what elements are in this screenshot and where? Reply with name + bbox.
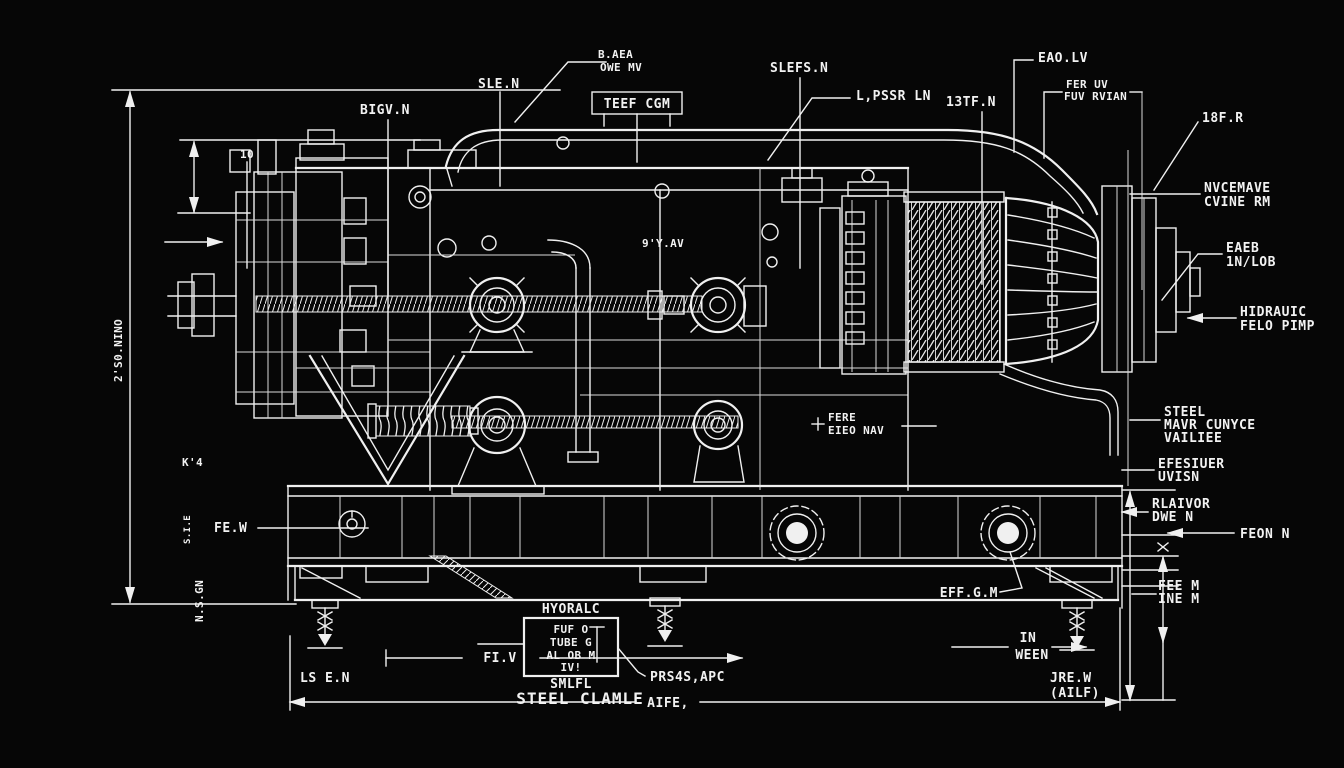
label-fere-line1: FERE — [828, 411, 856, 424]
label-nvce-line2: CVINE RM — [1204, 195, 1271, 210]
label-box-line1: FUF O — [553, 623, 588, 636]
label-feonn: FEON N — [1240, 527, 1290, 542]
label-eao: EAO.LV — [1038, 51, 1088, 66]
label-feem-line2: INE M — [1158, 592, 1200, 607]
label-fer-line2: FUV RVIAN — [1064, 90, 1127, 103]
label-18fr: 18F.R — [1202, 111, 1244, 126]
gear-cluster — [820, 170, 906, 374]
label-steel-line3: VAILIEE — [1164, 431, 1222, 446]
label-ten: 10 — [240, 148, 254, 161]
label-fere-line2: EIEO NAV — [828, 424, 884, 437]
label-in-line1: IN — [1020, 631, 1037, 646]
rosette-wheel-left — [770, 506, 824, 560]
label-nsgn-vertical: N.S.GN — [193, 580, 206, 622]
label-nvce-line1: NVCEMAVE — [1204, 181, 1271, 196]
jack-foot-left — [308, 600, 342, 648]
rosette-wheel-right — [981, 506, 1035, 560]
label-in-line2: WEEN — [1015, 648, 1048, 663]
blueprint-drawing: B.AEA OWE MV SLEFS.N TEEF CGM L,PSSR LN … — [0, 0, 1344, 768]
label-effgm: EFF.G.M — [940, 586, 998, 601]
label-box-line2: TUBE G — [550, 636, 592, 649]
label-lpssr: L,PSSR LN — [856, 89, 931, 104]
label-bigv: BIGV.N — [360, 103, 410, 118]
jack-foot-right — [1060, 600, 1094, 650]
label-jrew-line1: JRE.W — [1050, 671, 1092, 686]
end-assembly — [1102, 186, 1200, 372]
jack-foot-center — [648, 598, 682, 646]
bearing-hub-upper-left — [462, 278, 532, 352]
label-rlaivor-line2: DWE N — [1152, 510, 1194, 525]
label-top-owen-line1: B.AEA — [598, 48, 633, 61]
bearing-hub-lower-right — [694, 401, 744, 482]
headstock — [168, 130, 669, 418]
label-eaeb-line1: EAEB — [1226, 241, 1259, 256]
blueprint-canvas: B.AEA OWE MV SLEFS.N TEEF CGM L,PSSR LN … — [0, 0, 1344, 768]
dimension-right — [1122, 92, 1178, 700]
lower-pipe — [1000, 364, 1118, 455]
bell-cage — [1006, 198, 1098, 364]
label-hydraulic-line1: HIDRAUIC — [1240, 305, 1307, 320]
label-top-owen-line2: OWE MV — [600, 61, 642, 74]
label-efes-line2: UVISN — [1158, 470, 1200, 485]
label-steel-clamle: STEEL CLAMLE — [516, 689, 644, 708]
label-teef-cgm: TEEF CGM — [604, 97, 671, 112]
dimension-bottom — [290, 608, 1120, 710]
label-aiee: AIFE, — [647, 696, 689, 711]
label-few: FE.W — [214, 521, 247, 536]
label-box-line4: IV! — [560, 661, 581, 674]
label-jrew-line2: (AILF) — [1050, 686, 1100, 701]
label-sle: SLE.N — [478, 77, 520, 92]
label-fiv: FI.V — [483, 651, 516, 666]
label-lsen: LS E.N — [300, 671, 350, 686]
label-13tf: 13TF.N — [946, 95, 996, 110]
cable-drum — [904, 192, 1004, 372]
label-k4: K'4 — [182, 456, 203, 469]
label-prs: PRS4S,APC — [650, 670, 725, 685]
label-9yav: 9'Y.AV — [642, 237, 684, 250]
lead-screw — [256, 291, 738, 428]
label-dim-left-vertical: 2'S0.NINO — [112, 319, 125, 382]
label-eaeb-line2: 1N/LOB — [1226, 255, 1276, 270]
label-slefs: SLEFS.N — [770, 61, 828, 76]
label-sie-vertical: S.I.E — [183, 515, 193, 544]
label-hydraulic-line2: FELO PIMP — [1240, 319, 1315, 334]
label-hyoralc: HYORALC — [542, 602, 600, 617]
